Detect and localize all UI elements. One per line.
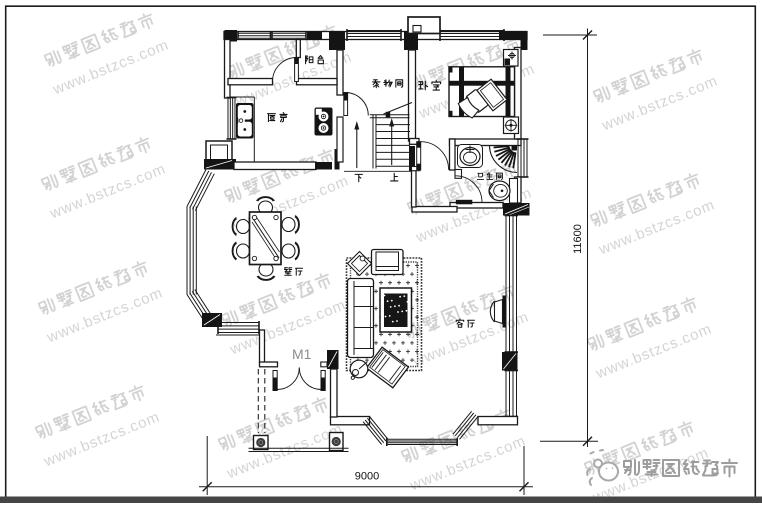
svg-text:M1: M1 <box>292 346 312 362</box>
svg-text:9000: 9000 <box>355 471 379 483</box>
svg-text:11600: 11600 <box>572 224 584 254</box>
